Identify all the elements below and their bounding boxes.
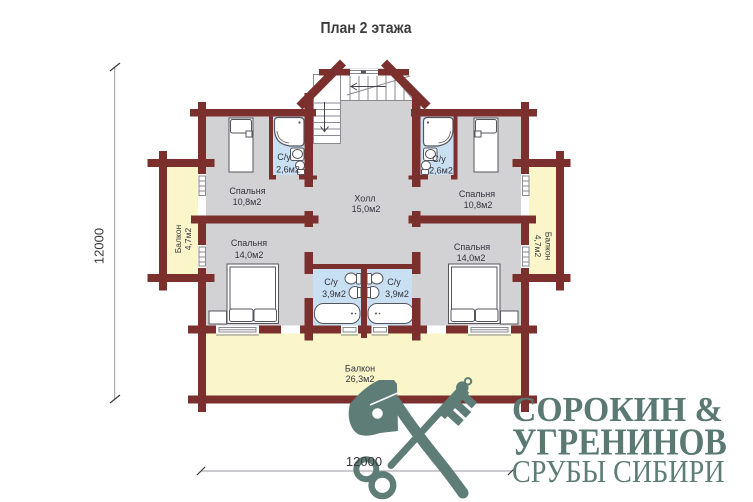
svg-text:26,3м2: 26,3м2 bbox=[346, 374, 375, 384]
svg-text:С/у: С/у bbox=[387, 277, 401, 287]
svg-text:2,6м2: 2,6м2 bbox=[276, 165, 300, 175]
svg-text:14,0м2: 14,0м2 bbox=[457, 253, 486, 263]
svg-text:Балкон: Балкон bbox=[173, 224, 183, 253]
svg-text:Спальня: Спальня bbox=[454, 242, 490, 252]
svg-text:Спальня: Спальня bbox=[459, 189, 495, 199]
svg-text:4,7м2: 4,7м2 bbox=[183, 228, 193, 251]
svg-text:Спальня: Спальня bbox=[229, 186, 265, 196]
svg-text:3,9м2: 3,9м2 bbox=[385, 289, 409, 299]
svg-text:Спальня: Спальня bbox=[231, 238, 267, 248]
svg-text:12000: 12000 bbox=[346, 454, 382, 469]
svg-text:Балкон: Балкон bbox=[544, 232, 554, 261]
svg-text:10,8м2: 10,8м2 bbox=[233, 197, 262, 207]
svg-text:3,9м2: 3,9м2 bbox=[322, 289, 346, 299]
svg-text:СРУБЫ СИБИРИ: СРУБЫ СИБИРИ bbox=[512, 455, 725, 489]
svg-text:15,0м2: 15,0м2 bbox=[352, 204, 381, 214]
svg-text:10,8м2: 10,8м2 bbox=[464, 200, 493, 210]
svg-text:С/у: С/у bbox=[324, 277, 338, 287]
svg-text:12000: 12000 bbox=[92, 228, 107, 264]
svg-text:4,7м2: 4,7м2 bbox=[533, 235, 543, 258]
svg-text:С/у: С/у bbox=[432, 154, 446, 164]
svg-text:2,6м2: 2,6м2 bbox=[429, 166, 453, 176]
svg-text:Холл: Холл bbox=[354, 194, 375, 204]
svg-text:С/у: С/у bbox=[277, 152, 291, 162]
svg-text:План 2 этажа: План 2 этажа bbox=[321, 20, 412, 37]
svg-text:Балкон: Балкон bbox=[345, 364, 375, 374]
svg-text:14,0м2: 14,0м2 bbox=[235, 250, 264, 260]
